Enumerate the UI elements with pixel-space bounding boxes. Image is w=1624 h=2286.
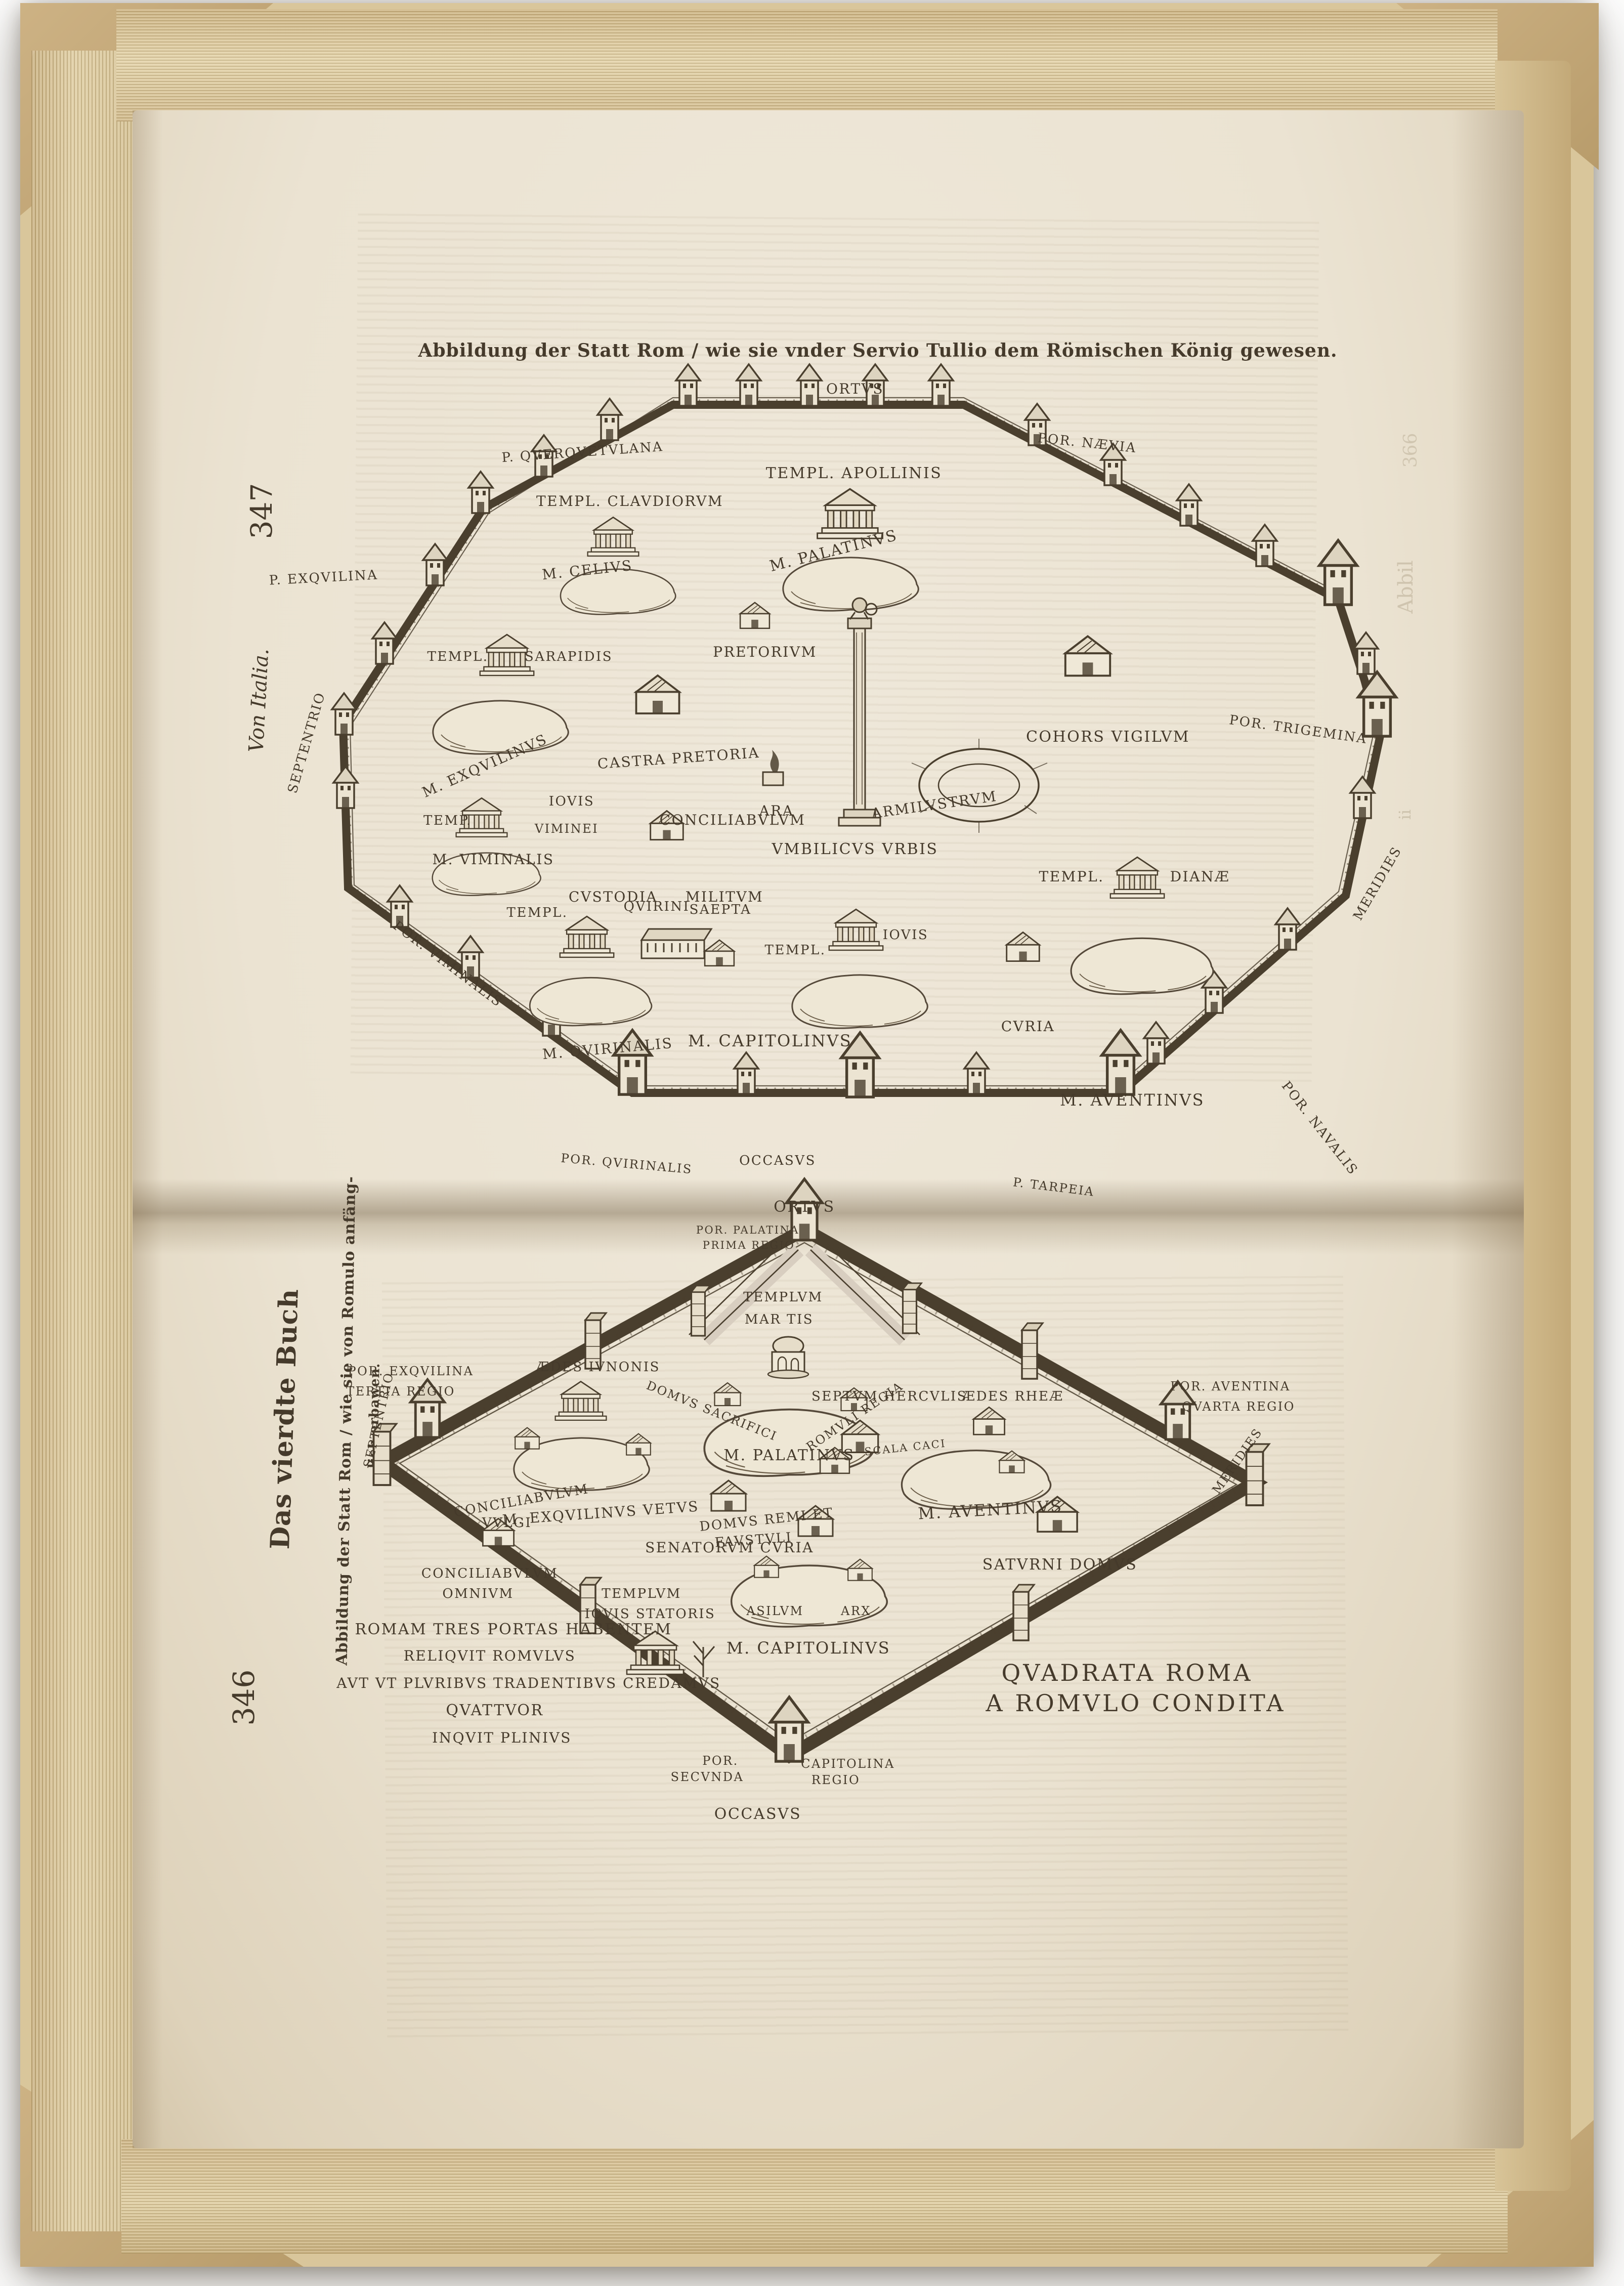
senatorum-curia-building (711, 1480, 746, 1511)
gate-palatina-2: PRIMA REGIO (703, 1239, 795, 1251)
label-m-capitolinus-2: M. CAPITOLINVS (726, 1638, 890, 1658)
label-templ-dianae-2: DIANÆ (1170, 868, 1230, 885)
pliny-line-1: ROMAM TRES PORTAS HABENTEM (355, 1621, 672, 1638)
label-m-viminalis: M. VIMINALIS (432, 851, 554, 868)
gate-tarpeia: P. TARPEIA (1012, 1175, 1095, 1199)
label-temp-iovis-2: IOVIS (549, 794, 595, 809)
label-temp-iovis-3: VIMINEI (534, 822, 599, 836)
cohors-vigilum-building (1065, 636, 1110, 675)
map1-page-number: 347 (244, 483, 279, 539)
label-templ-claudiorum: TEMPL. CLAVDIORVM (536, 493, 723, 510)
label-curia: CVRIA (1001, 1018, 1055, 1035)
map-quadrata-roma: 346 Das vierdte Buch Abbildung der Statt… (227, 1176, 1295, 1823)
label-templum-iovis-2: IOVIS STATORIS (585, 1606, 716, 1622)
temple-of-quirinus (560, 916, 614, 957)
pliny-line-2: RELIQVIT ROMVLVS (404, 1647, 576, 1664)
compass-ortus: ORTVS (826, 380, 884, 397)
domus-sacrifici-building (715, 1383, 741, 1406)
label-templum-iovis-1: TEMPLVM (602, 1586, 681, 1601)
label-templ-iovis-1: TEMPL. (765, 943, 826, 958)
temple-of-claudii (588, 517, 639, 556)
gate-viminalis: POR. VIMINALIS (390, 918, 505, 1010)
gate-exquilina: P. EXQVILINA (269, 567, 378, 588)
bleed-text: Abbil (1394, 560, 1418, 614)
gate-quirinalis: POR. QVIRINALIS (561, 1151, 693, 1177)
label-templ-apollinis: TEMPL. APOLLINIS (766, 464, 943, 482)
woodcut-print: Abbildung der Statt Rom / wie sie vnder … (0, 0, 1624, 2286)
arx-building (848, 1559, 872, 1581)
label-septum-herculis: SEPTVM HERCVLIS (811, 1389, 967, 1404)
compass-meridies: MERIDIES (1350, 844, 1405, 923)
gate-secunda-1: POR. (702, 1754, 739, 1768)
map2-title: QVADRATA ROMA A ROMVLO CONDITA (986, 1659, 1286, 1717)
label-saturni-domus: SATVRNI DOMVS (982, 1556, 1138, 1574)
label-templum-martis-2: MAR TIS (745, 1312, 814, 1327)
pliny-line-4: QVATTVOR (446, 1702, 543, 1719)
temple-of-diana (1110, 857, 1164, 898)
label-aedes-iunonis: ÆDES IVNONIS (535, 1360, 660, 1375)
bare-tree (693, 1641, 714, 1677)
gate-capitolina-1: CAPITOLINA (801, 1757, 895, 1771)
esquiline-house-2 (626, 1434, 651, 1455)
book-photo: { "page_top": { "caption": "Abbildung de… (0, 0, 1624, 2286)
map-servius-tullius: Abbildung der Statt Rom / wie sie vnder … (244, 340, 1421, 1199)
label-asilum: ASILVM (746, 1604, 803, 1618)
label-aedes-rheae: ÆDES RHEÆ (961, 1389, 1064, 1404)
map2-margin-title: Das vierdte Buch (265, 1288, 305, 1550)
gate-navalis: POR. NAVALIS (1278, 1079, 1361, 1178)
ara-altar (763, 750, 783, 785)
label-saepta: SAEPTA (690, 902, 752, 917)
compass-occasus-2: OCCASVS (714, 1805, 801, 1823)
label-m-aventinus: M. AVENTINVS (1060, 1090, 1205, 1110)
label-ara: ARA (758, 802, 794, 819)
custodia-militum-building (642, 929, 711, 958)
map1-margin-title: Von Italia. (245, 648, 274, 753)
compass-occasus: OCCASVS (739, 1153, 816, 1168)
gate-trigemina: POR. TRIGEMINA (1228, 712, 1369, 747)
gate-palatina-1: POR. PALATINA (696, 1224, 799, 1236)
saepta-building (705, 940, 734, 966)
label-templ-iovis-2: IOVIS (883, 927, 929, 943)
label-castra-pretoria: CASTRA PRETORIA (597, 744, 760, 772)
gate-querquetulana: P. QVERQVETVLANA (501, 439, 664, 465)
label-armilustrum: ARMILVSTRVM (870, 788, 998, 822)
gate-secunda-2: SECVNDA (671, 1770, 744, 1784)
bleed-number: 366 (1400, 433, 1421, 468)
map1-caption: Abbildung der Statt Rom / wie sie vnder … (417, 340, 1337, 361)
pliny-line-3: AVT VT PLVRIBVS TRADENTIBVS CREDAMVS (336, 1675, 720, 1691)
compass-ortus-2: ORTVS (774, 1198, 835, 1216)
compass-septentrio: SEPTENTRIO (285, 690, 328, 795)
temple-of-jupiter (829, 909, 883, 950)
bleed-signature: ii (1395, 810, 1415, 820)
pretorium-building (740, 603, 770, 628)
label-m-capitolinus: M. CAPITOLINVS (688, 1031, 852, 1050)
aedes-iunonis-building (555, 1381, 607, 1420)
gate-capitolina-2: REGIO (811, 1773, 860, 1787)
asylum-chapel (754, 1556, 779, 1578)
label-conciliabulum-omnium-1: CONCILIABVLVM (421, 1566, 558, 1581)
label-conciliabulum-omnium-2: OMNIVM (442, 1586, 514, 1601)
pliny-line-5: INQVIT PLINIVS (432, 1729, 572, 1746)
map2-page-number: 346 (227, 1670, 261, 1726)
gate-exquilina-1: POR. EXQVILINA (348, 1364, 474, 1378)
label-templ-sarapidis-2: SARAPIDIS (525, 649, 613, 664)
curia-building (1007, 933, 1040, 961)
label-temp-iovis-1: TEMP. (423, 813, 472, 828)
map1-show-through: 366 Abbil ii (1394, 433, 1421, 820)
map2-margin-caption-1: Abbildung der Statt Rom / wie sie von Ro… (333, 1176, 360, 1666)
title-a-romulo-condita: A ROMVLO CONDITA (986, 1689, 1286, 1717)
title-quadrata-roma: QVADRATA ROMA (1002, 1659, 1253, 1686)
label-templ-quirini-2: QVIRINI (624, 899, 690, 914)
aedes-rheae-building (973, 1407, 1004, 1434)
label-templum-martis-1: TEMPLVM (743, 1290, 823, 1305)
label-m-palatinus-2: M. PALATINVS (723, 1447, 854, 1464)
esquiline-house-1 (515, 1428, 539, 1449)
castra-pretoria-building (636, 675, 679, 713)
gate-aventina-1: POR. AVENTINA (1170, 1379, 1290, 1393)
label-cohors-vigilum: COHORS VIGILVM (1026, 728, 1190, 746)
temple-of-mars (768, 1337, 808, 1378)
central-column (839, 598, 880, 826)
label-templ-sarapidis-1: TEMPL. (428, 649, 489, 664)
gate-exquilina-2: TERTIA REGIO (346, 1384, 455, 1399)
label-umbilicus-urbis: VMBILICVS VRBIS (772, 840, 938, 858)
label-arx: ARX (840, 1604, 871, 1618)
temple-of-apollo (818, 489, 883, 538)
gate-aventina-2: QVARTA REGIO (1182, 1400, 1295, 1414)
label-pretorium: PRETORIVM (713, 644, 817, 660)
armilustrum-arena (912, 739, 1047, 833)
label-templ-dianae-1: TEMPL. (1039, 868, 1104, 885)
label-templ-quirini-1: TEMPL. (507, 905, 568, 920)
